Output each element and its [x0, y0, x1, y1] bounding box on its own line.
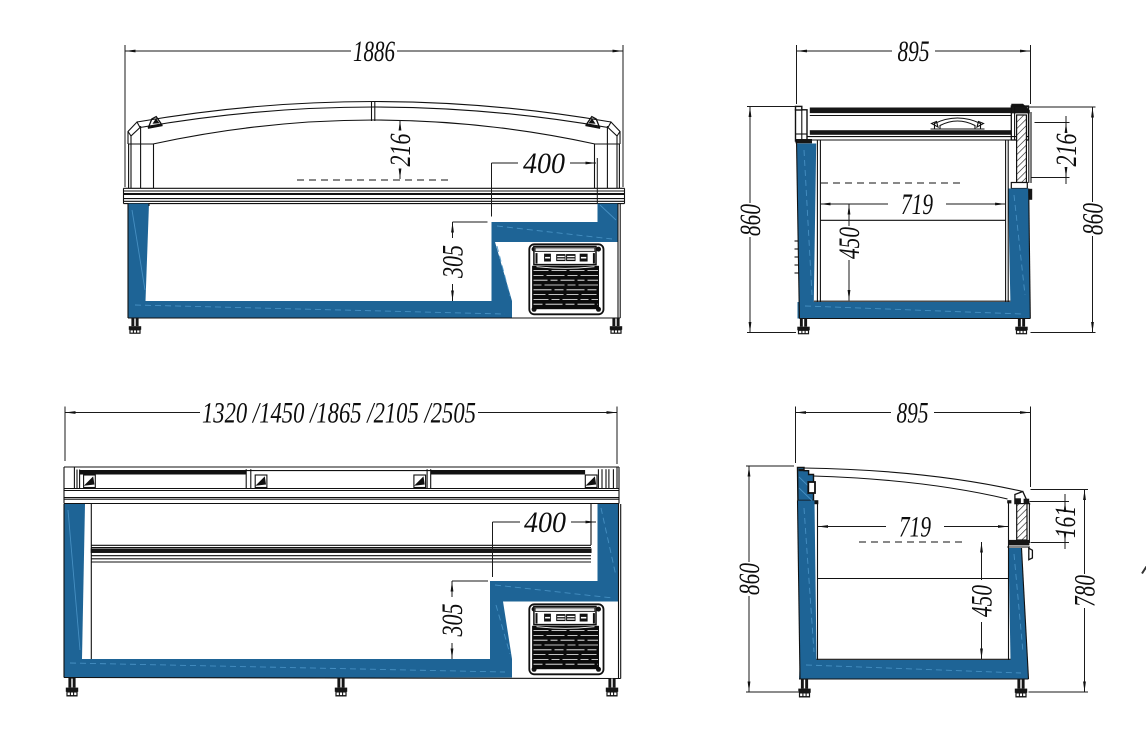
svg-text:860: 860 [734, 204, 767, 236]
svg-text:1320 /1450 /1865 /2105 /2505: 1320 /1450 /1865 /2105 /2505 [202, 396, 476, 429]
svg-text:305: 305 [436, 604, 469, 638]
svg-text:780: 780 [1069, 575, 1102, 607]
svg-text:895: 895 [897, 396, 929, 429]
svg-text:400: 400 [523, 147, 565, 180]
svg-text:719: 719 [901, 188, 933, 221]
svg-text:216: 216 [1050, 134, 1083, 167]
svg-text:860: 860 [733, 563, 766, 595]
svg-text:860: 860 [1077, 203, 1110, 235]
svg-text:305: 305 [437, 245, 470, 279]
svg-text:719: 719 [899, 510, 931, 543]
svg-text:895: 895 [898, 35, 930, 68]
svg-text:450: 450 [966, 585, 999, 617]
svg-text:216: 216 [384, 134, 417, 167]
svg-text:1886: 1886 [353, 35, 395, 68]
svg-text:161: 161 [1049, 506, 1082, 538]
svg-text:400: 400 [524, 506, 566, 539]
svg-text:450: 450 [833, 227, 866, 259]
